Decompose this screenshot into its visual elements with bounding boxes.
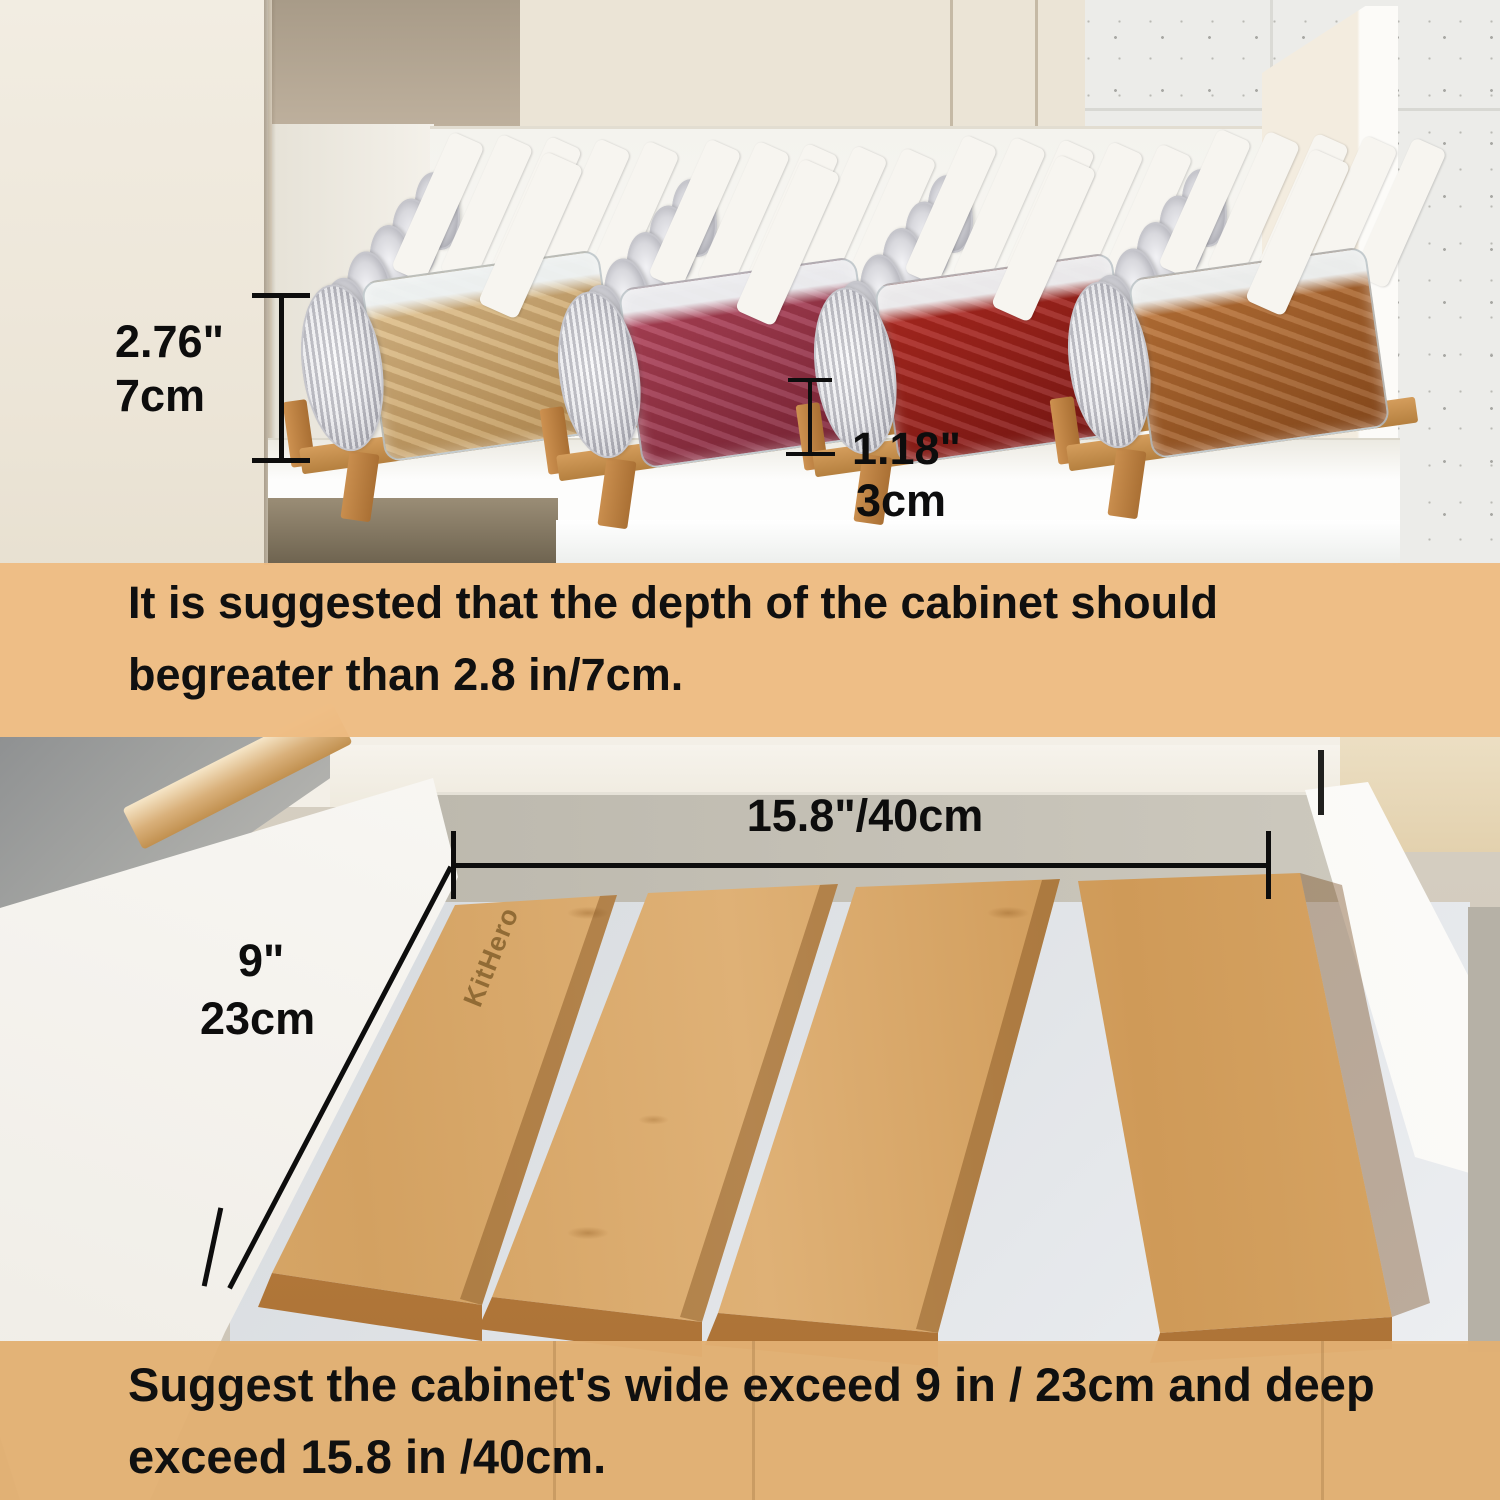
height-dimension-metric: 7cm (115, 372, 205, 421)
height-dimension-line (279, 296, 284, 462)
dimension-tick (252, 458, 310, 463)
suggestion-note-top: It is suggested that the depth of the ca… (0, 563, 1500, 737)
cabinet-door-groove (950, 0, 953, 128)
shelf-front-edge (556, 520, 1400, 563)
dimension-tick (252, 293, 310, 298)
width-dimension-label: 15.8"/40cm (640, 792, 1090, 841)
width-dimension-line (453, 863, 1270, 868)
spice-jar (1070, 229, 1425, 478)
note-line: exceed 15.8 in /40cm. (128, 1429, 606, 1484)
window-frame-edge (1318, 750, 1324, 815)
depth-dimension-metric: 23cm (200, 995, 315, 1044)
note-line: begreater than 2.8 in/7cm. (128, 649, 683, 701)
dimension-tick (1266, 831, 1271, 899)
note-line: It is suggested that the depth of the ca… (128, 577, 1218, 629)
cabinet-recess (272, 0, 522, 128)
product-infographic: 2.76" 7cm 1.18" 3cm It is suggested that… (0, 0, 1500, 1500)
cabinet-door-groove (1035, 0, 1038, 128)
suggestion-note-bottom: Suggest the cabinet's wide exceed 9 in /… (0, 1341, 1500, 1500)
lip-dimension-line (808, 380, 812, 456)
depth-dimension-inches: 9" (238, 937, 284, 986)
note-line: Suggest the cabinet's wide exceed 9 in /… (128, 1357, 1375, 1412)
height-dimension-inches: 2.76" (115, 318, 224, 367)
dimension-tick (788, 378, 832, 382)
background-right-band (1468, 907, 1500, 1352)
lip-dimension-metric: 3cm (856, 477, 946, 526)
dimension-tick (451, 831, 456, 899)
lip-dimension-inches: 1.18" (852, 425, 961, 474)
dimension-tick (786, 452, 835, 456)
spice-rack-4 (1040, 139, 1444, 526)
upper-cabinet-doors (520, 0, 1085, 132)
